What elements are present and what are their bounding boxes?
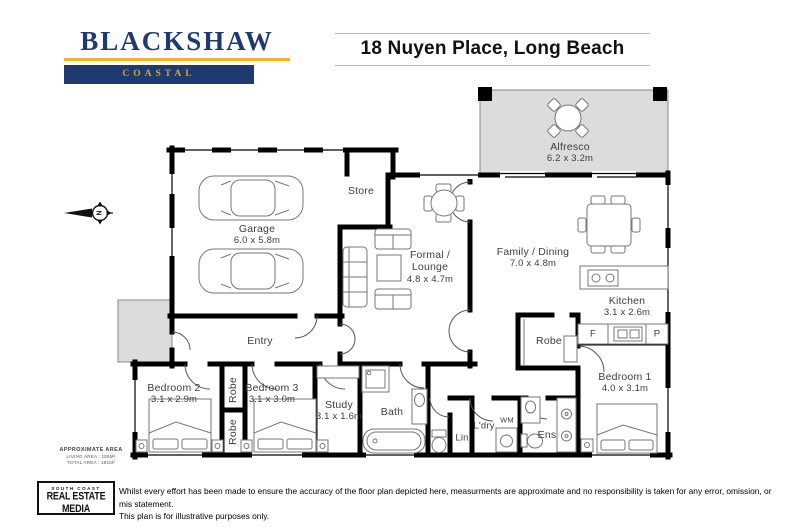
- bed-3: [254, 399, 316, 452]
- label-fridge: F: [590, 328, 596, 339]
- lamp: [244, 444, 249, 449]
- lamp: [585, 443, 590, 448]
- label-study: Study 3.1 x 1.6m: [316, 399, 362, 423]
- label-store: Store: [348, 185, 374, 197]
- floor-plan-page: BLACKSHAW COASTAL 18 Nuyen Place, Long B…: [0, 0, 790, 527]
- north-arrow-icon: [64, 202, 113, 225]
- label-robe-walkin: Robe: [536, 335, 562, 347]
- label-bedroom2: Bedroom 2 3.1 x 2.9m: [147, 382, 200, 406]
- kitchen-island: [580, 266, 668, 289]
- lamp: [215, 444, 220, 449]
- car-1: [199, 176, 303, 220]
- label-ensuite: Ens: [538, 429, 557, 441]
- dining-table: [578, 196, 640, 253]
- study-desk: [317, 366, 359, 378]
- real-estate-media-logo: SOUTH COAST REAL ESTATE MEDIA: [37, 481, 115, 515]
- north-label: N: [97, 210, 104, 215]
- label-bedroom3: Bedroom 3 3.1 x 3.0m: [245, 382, 298, 406]
- label-kitchen: Kitchen 3.1 x 2.6m: [604, 295, 650, 319]
- label-laundry: L'dry: [473, 420, 494, 431]
- label-robe-b: Robe: [227, 419, 239, 445]
- disclaimer-text: Whilst every effort has been made to ens…: [119, 485, 779, 523]
- alfresco-post-right: [653, 87, 667, 101]
- bed-1: [597, 404, 657, 453]
- lounge-furniture: [343, 229, 411, 309]
- label-robe-a: Robe: [227, 377, 239, 403]
- label-linen: Lin: [455, 432, 468, 443]
- disclaimer-line2: This plan is for illustrative purposes o…: [119, 511, 269, 521]
- label-alfresco: Alfresco 6.2 x 3.2m: [547, 141, 593, 165]
- porch-area: [118, 300, 172, 362]
- ensuite-fixtures: [521, 397, 576, 452]
- label-garage: Garage 6.0 x 5.8m: [234, 223, 280, 247]
- total-area: TOTAL AREA : 191M²: [52, 460, 130, 465]
- alfresco-post-left: [478, 87, 492, 101]
- round-table: [424, 184, 464, 222]
- lamp: [139, 444, 144, 449]
- label-family-dining: Family / Dining 7.0 x 4.8m: [497, 246, 569, 270]
- label-wm: WM: [500, 417, 514, 426]
- lamp: [320, 444, 325, 449]
- wc-toilet: [432, 430, 446, 453]
- label-bedroom1: Bedroom 1 4.0 x 3.1m: [598, 371, 651, 395]
- area-heading: APPROXIMATE AREA: [52, 447, 130, 453]
- label-bath: Bath: [381, 406, 403, 418]
- label-formal-lounge: Formal / Lounge 4.8 x 4.7m: [407, 249, 453, 285]
- car-2: [199, 249, 303, 293]
- media-logo-main: REAL ESTATE MEDIA: [39, 490, 113, 515]
- bed-2: [149, 399, 211, 452]
- label-pantry: P: [654, 328, 661, 339]
- washing-machine: [496, 428, 517, 452]
- approximate-area-block: APPROXIMATE AREA LIVING AREA : 155M² TOT…: [52, 447, 130, 465]
- disclaimer-line1: Whilst every effort has been made to ens…: [119, 486, 772, 509]
- living-area: LIVING AREA : 155M²: [52, 454, 130, 459]
- label-entry: Entry: [247, 335, 273, 347]
